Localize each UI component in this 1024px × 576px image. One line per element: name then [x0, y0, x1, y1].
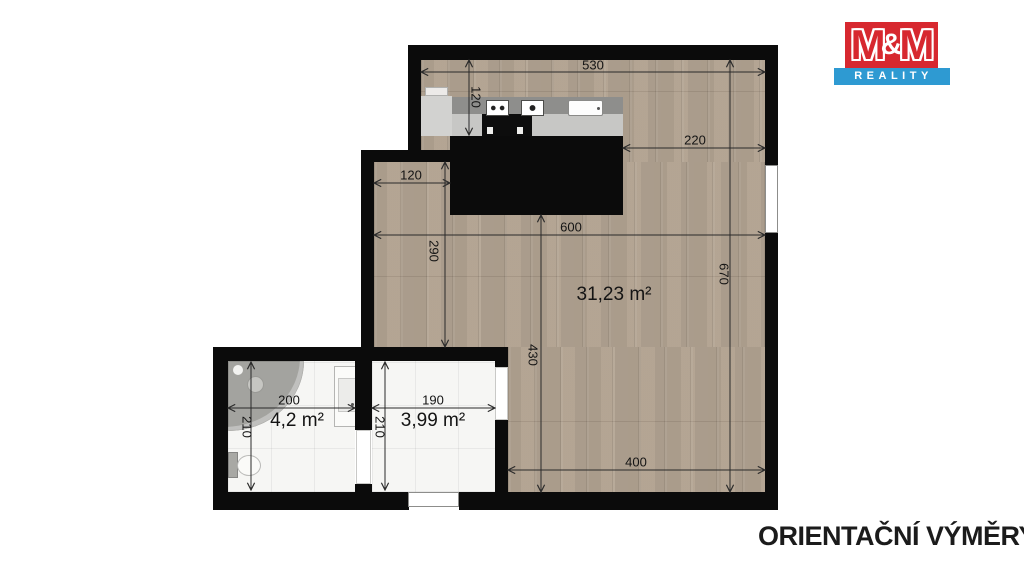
logo-m-left: M [851, 24, 884, 66]
logo-ampersand-icon: & [881, 30, 903, 60]
water-heater-knob [351, 403, 354, 406]
orientation-caption: ORIENTAČNÍ VÝMĚRY [758, 521, 1024, 552]
wall-right-lower [765, 233, 778, 492]
stove-knob-right [517, 127, 523, 134]
dimension-label-120-kitchen: 120 [469, 86, 484, 108]
sink-faucet [597, 107, 600, 110]
wall-bottom-right [459, 492, 778, 510]
dimension-label-200: 200 [278, 393, 300, 408]
bathtub-drain [233, 365, 243, 375]
dimension-label-290: 290 [427, 240, 442, 262]
burner-plate-left [486, 100, 509, 116]
bathroom-door-opening [356, 430, 371, 484]
dimension-label-220: 220 [684, 133, 706, 148]
logo-m-right: M [899, 24, 932, 66]
bathtub-seat [247, 376, 264, 393]
dimension-label-430: 430 [526, 344, 541, 366]
wall-right-upper [765, 60, 778, 165]
wall-divider-upper [355, 361, 372, 430]
dimension-label-210-bath: 210 [240, 416, 255, 438]
toilet-bowl [237, 455, 261, 476]
wall-rooms-top [213, 347, 508, 361]
dimension-label-400: 400 [625, 455, 647, 470]
wall-step [361, 150, 454, 162]
area-label-bathroom: 4,2 m² [270, 410, 324, 432]
dimension-label-190: 190 [422, 393, 444, 408]
dimension-label-210-hall: 210 [373, 416, 388, 438]
dimension-label-600: 600 [560, 220, 582, 235]
utility-core-block [450, 136, 623, 215]
entry-door-opening [408, 492, 459, 507]
window-right [765, 165, 778, 233]
stove-knob-left [487, 127, 493, 134]
wall-bottom-left [213, 492, 409, 510]
dimension-label-530: 530 [582, 58, 604, 73]
dimension-label-670: 670 [717, 263, 732, 285]
burner-plate-right [521, 100, 544, 116]
area-label-hall: 3,99 m² [401, 410, 465, 432]
water-heater-panel [338, 378, 356, 412]
logo-banner: REALITY [834, 68, 950, 85]
area-label-living: 31,23 m² [577, 284, 652, 306]
wall-extension-left [361, 150, 374, 361]
wood-floor-living-bottom [508, 347, 765, 492]
wall-hall-right-lower [495, 420, 508, 492]
wall-rooms-left [213, 347, 228, 510]
floorplan-canvas: 530 120 220 120 600 290 670 430 400 200 … [0, 0, 1024, 576]
logo-mm-box: M & M [845, 22, 938, 68]
kitchen-left-cabinet [421, 96, 452, 136]
wall-divider-lower [355, 484, 372, 494]
wall-upper-left [408, 45, 421, 162]
dimension-label-120-ext: 120 [400, 168, 422, 183]
hall-door-opening [495, 367, 508, 420]
kitchen-wall-shelf [425, 87, 448, 96]
